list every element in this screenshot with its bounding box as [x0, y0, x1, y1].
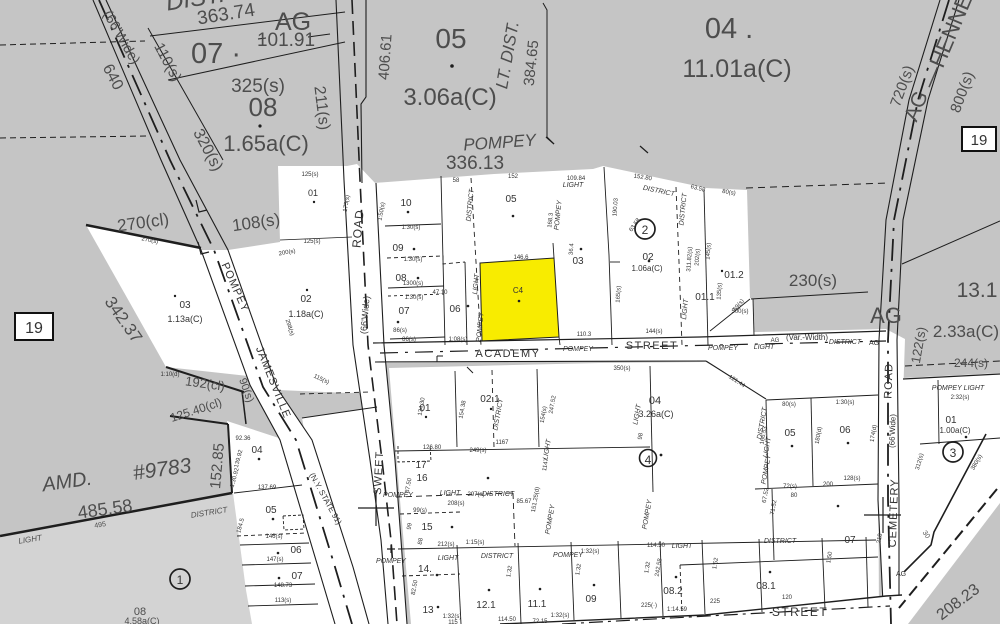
svg-text:09: 09 — [585, 594, 597, 605]
svg-text:225: 225 — [710, 599, 721, 605]
svg-text:244(s): 244(s) — [954, 356, 988, 370]
svg-text:1:10(d): 1:10(d) — [160, 372, 179, 378]
svg-text:16: 16 — [416, 473, 428, 484]
svg-text:114.50: 114.50 — [498, 617, 517, 623]
svg-text:DISTRICT: DISTRICT — [829, 339, 862, 346]
svg-text:297(s): 297(s) — [467, 492, 484, 498]
svg-text:80: 80 — [791, 493, 798, 499]
svg-text:(66'Wide): (66'Wide) — [887, 414, 897, 449]
svg-text:17: 17 — [415, 460, 427, 471]
svg-text:DISTRICT: DISTRICT — [482, 491, 515, 498]
svg-text:03: 03 — [572, 256, 584, 267]
svg-text:07 ·: 07 · — [191, 38, 241, 70]
svg-text:08.2: 08.2 — [663, 586, 683, 597]
svg-text:3.26a(C): 3.26a(C) — [638, 409, 673, 419]
svg-text:92.36: 92.36 — [235, 436, 251, 442]
svg-text:1:14.59: 1:14.59 — [667, 607, 688, 613]
svg-text:3.06a(C): 3.06a(C) — [403, 84, 496, 111]
svg-text:406.61: 406.61 — [375, 34, 395, 81]
svg-text:13: 13 — [422, 605, 434, 616]
svg-text:113(s): 113(s) — [275, 598, 292, 604]
svg-text:58: 58 — [453, 178, 460, 184]
svg-text:1.00a(C): 1.00a(C) — [939, 426, 970, 435]
svg-text:POMPEY LIGHT: POMPEY LIGHT — [932, 385, 985, 392]
svg-text:06: 06 — [449, 304, 461, 315]
svg-text:350(s): 350(s) — [613, 366, 630, 372]
svg-text:STREET: STREET — [772, 605, 828, 619]
svg-text:101.91: 101.91 — [257, 30, 315, 51]
svg-text:500(s): 500(s) — [731, 309, 748, 315]
svg-text:128(s): 128(s) — [843, 476, 860, 482]
svg-text:1:30(s): 1:30(s) — [402, 225, 421, 231]
svg-text:CEMETERY: CEMETERY — [887, 478, 901, 547]
svg-text:225(·): 225(·) — [641, 603, 657, 609]
svg-text:1:32(s): 1:32(s) — [581, 549, 600, 555]
svg-text:ROAD: ROAD — [882, 363, 895, 399]
svg-text:03: 03 — [179, 300, 191, 311]
svg-text:POMPEY: POMPEY — [708, 345, 739, 352]
svg-text:05: 05 — [265, 505, 277, 516]
svg-text:09: 09 — [392, 243, 404, 254]
svg-text:POMPEY: POMPEY — [376, 558, 407, 565]
svg-text:99(s): 99(s) — [413, 508, 427, 514]
svg-text:AG: AG — [896, 571, 906, 578]
svg-text:02: 02 — [300, 294, 312, 305]
svg-text:04: 04 — [251, 445, 263, 456]
svg-text:AG: AG — [869, 340, 879, 347]
svg-text:POMPEY: POMPEY — [553, 552, 584, 559]
svg-text:06: 06 — [839, 425, 851, 436]
svg-text:07: 07 — [844, 535, 856, 546]
svg-text:DISTRICT: DISTRICT — [764, 538, 797, 545]
svg-text:04 .: 04 . — [705, 13, 753, 45]
svg-text:336.13: 336.13 — [446, 153, 504, 174]
svg-text:05: 05 — [435, 23, 466, 54]
svg-text:1.13a(C): 1.13a(C) — [167, 314, 202, 324]
svg-text:137.69: 137.69 — [258, 485, 277, 491]
svg-text:146.6: 146.6 — [513, 255, 529, 261]
svg-text:SWEET: SWEET — [372, 450, 386, 495]
svg-text:06: 06 — [290, 545, 302, 556]
svg-text:14.: 14. — [418, 564, 432, 575]
svg-text:1:30(s): 1:30(s) — [836, 400, 855, 406]
svg-text:15: 15 — [421, 522, 433, 533]
svg-text:125(s): 125(s) — [303, 239, 320, 245]
svg-text:80(s): 80(s) — [782, 402, 796, 408]
svg-text:07: 07 — [398, 306, 410, 317]
svg-text:13.1: 13.1 — [957, 279, 998, 302]
svg-text:10: 10 — [400, 198, 412, 209]
svg-text:1300(s): 1300(s) — [403, 281, 423, 287]
svg-text:2: 2 — [642, 223, 649, 237]
svg-text:2:32(s): 2:32(s) — [951, 395, 970, 401]
svg-text:3: 3 — [950, 446, 957, 460]
svg-text:152: 152 — [508, 174, 519, 180]
svg-text:144(s): 144(s) — [645, 329, 662, 335]
svg-text:135(s): 135(s) — [716, 283, 723, 300]
svg-text:DISTRICT: DISTRICT — [481, 553, 514, 560]
svg-text:249(s): 249(s) — [469, 448, 486, 454]
svg-text:36.4: 36.4 — [569, 243, 576, 256]
svg-text:LIGHT: LIGHT — [438, 555, 459, 562]
svg-text:LIGHT: LIGHT — [440, 490, 461, 497]
svg-text:115: 115 — [448, 620, 458, 624]
svg-text:01.2: 01.2 — [724, 270, 744, 281]
svg-text:1:15(s): 1:15(s) — [466, 540, 485, 546]
svg-text:08: 08 — [249, 92, 278, 122]
svg-text:1:32(s): 1:32(s) — [551, 613, 570, 619]
svg-text:04: 04 — [649, 395, 661, 407]
svg-text:01: 01 — [308, 188, 318, 198]
svg-text:125(s): 125(s) — [301, 172, 318, 178]
svg-text:47.10: 47.10 — [432, 290, 448, 296]
svg-text:145(s): 145(s) — [705, 243, 712, 260]
svg-text:1167: 1167 — [496, 440, 510, 446]
svg-text:LIGHT: LIGHT — [563, 182, 584, 189]
svg-text:C4: C4 — [513, 286, 524, 295]
svg-text:1: 1 — [177, 573, 184, 587]
svg-text:01.1: 01.1 — [695, 292, 715, 303]
svg-text:05: 05 — [505, 194, 517, 205]
svg-text:11.01a(C): 11.01a(C) — [682, 55, 791, 83]
svg-text:72(s): 72(s) — [783, 484, 797, 490]
svg-text:01: 01 — [945, 415, 957, 426]
svg-text:147(s): 147(s) — [266, 557, 283, 563]
svg-text:1.06a(C): 1.06a(C) — [631, 264, 662, 273]
svg-text:AG: AG — [771, 338, 780, 344]
svg-text:07: 07 — [291, 571, 303, 582]
svg-text:120: 120 — [782, 595, 793, 601]
svg-text:165(s): 165(s) — [615, 286, 622, 303]
svg-text:146(s): 146(s) — [265, 534, 282, 540]
svg-text:2.33a(C): 2.33a(C) — [933, 322, 999, 341]
svg-text:1:30(s): 1:30(s) — [404, 257, 423, 263]
svg-text:STREET: STREET — [626, 340, 678, 352]
svg-text:208(s): 208(s) — [447, 501, 464, 507]
svg-text:LIGHT: LIGHT — [754, 344, 775, 351]
svg-text:19: 19 — [25, 320, 43, 337]
svg-text:AG: AG — [870, 303, 902, 328]
svg-text:85.67: 85.67 — [516, 499, 532, 505]
svg-text:230(s): 230(s) — [789, 271, 837, 290]
svg-text:114.50: 114.50 — [647, 543, 666, 549]
svg-text:ACADEMY: ACADEMY — [476, 348, 541, 360]
svg-text:212(s): 212(s) — [437, 542, 454, 548]
svg-text:1:30(s): 1:30(s) — [405, 295, 424, 301]
svg-text:126.80: 126.80 — [423, 445, 442, 451]
svg-text:86(s): 86(s) — [393, 328, 407, 334]
svg-text:1.65a(C): 1.65a(C) — [223, 131, 309, 156]
svg-text:200: 200 — [823, 482, 834, 488]
svg-text:19: 19 — [971, 132, 988, 149]
svg-text:08.1: 08.1 — [756, 581, 776, 592]
svg-text:12.1: 12.1 — [476, 600, 496, 611]
svg-text:11.1: 11.1 — [528, 599, 547, 610]
svg-text:110.3: 110.3 — [577, 332, 592, 338]
svg-text:POMPEY: POMPEY — [563, 346, 594, 353]
svg-text:1.18a(C): 1.18a(C) — [288, 309, 323, 319]
svg-text:148.73: 148.73 — [274, 583, 293, 589]
svg-text:202(s): 202(s) — [694, 249, 701, 266]
svg-text:4.58a(C): 4.58a(C) — [124, 616, 159, 624]
svg-text:LIGHT: LIGHT — [672, 543, 693, 550]
svg-text:72.15: 72.15 — [532, 619, 548, 624]
svg-text:05: 05 — [784, 428, 796, 439]
svg-text:4: 4 — [645, 453, 652, 467]
